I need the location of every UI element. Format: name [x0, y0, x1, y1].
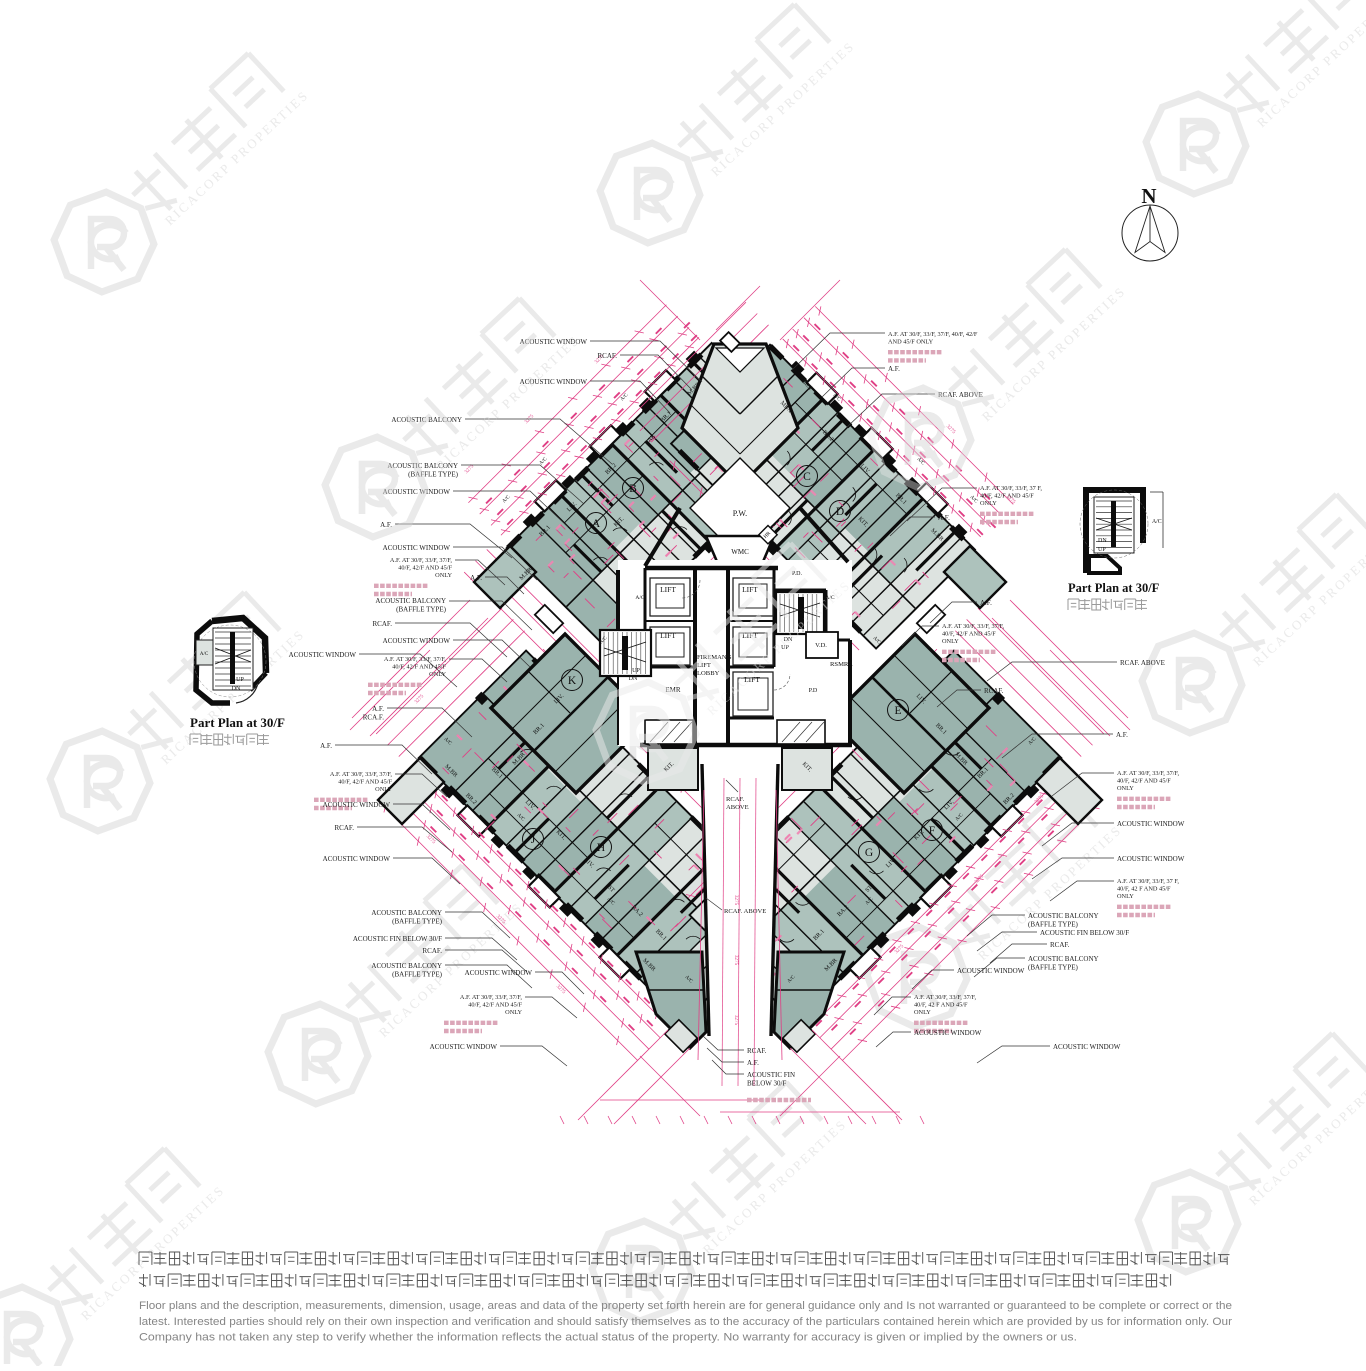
svg-text:RCAF.: RCAF.	[423, 947, 443, 955]
svg-text:A.F.: A.F.	[888, 365, 900, 373]
svg-text:RSMRR: RSMRR	[830, 661, 853, 668]
svg-text:F: F	[929, 825, 935, 837]
svg-text:A.F.: A.F.	[1116, 731, 1128, 739]
svg-text:ACOUSTIC WINDOW: ACOUSTIC WINDOW	[914, 1029, 982, 1037]
svg-text:A.F.: A.F.	[470, 574, 482, 582]
svg-text:K: K	[568, 675, 577, 687]
svg-text:DN: DN	[629, 676, 638, 682]
svg-text:ACOUSTIC WINDOW: ACOUSTIC WINDOW	[289, 651, 357, 659]
svg-text:Part Plan at 30/F: Part Plan at 30/F	[1068, 581, 1160, 595]
svg-text:A.F.: A.F.	[747, 1059, 759, 1067]
svg-text:ACOUSTIC FIN BELOW 30/F: ACOUSTIC FIN BELOW 30/F	[1040, 929, 1129, 937]
svg-text:RCAF.: RCAF.	[1050, 941, 1070, 949]
svg-text:C: C	[803, 471, 811, 483]
svg-text:ACOUSTIC WINDOW: ACOUSTIC WINDOW	[1117, 855, 1185, 863]
svg-text:DN: DN	[232, 686, 241, 692]
svg-text:A/C: A/C	[1152, 519, 1162, 525]
svg-text:UP: UP	[236, 677, 244, 683]
svg-text:P.W.: P.W.	[733, 509, 747, 518]
svg-text:ACOUSTIC WINDOW: ACOUSTIC WINDOW	[465, 969, 533, 977]
svg-text:J: J	[531, 834, 536, 846]
svg-text:LIFT: LIFT	[742, 585, 758, 594]
svg-text:P.D: P.D	[809, 688, 818, 694]
svg-text:Floor plans and the descriptio: Floor plans and the description, measure…	[139, 1300, 1232, 1312]
svg-text:ACOUSTIC WINDOW: ACOUSTIC WINDOW	[383, 544, 451, 552]
svg-text:RCAF.: RCAF.	[335, 824, 355, 832]
svg-text:ACOUSTIC WINDOW: ACOUSTIC WINDOW	[430, 1043, 498, 1051]
svg-text:WMC: WMC	[731, 548, 749, 556]
svg-text:Part Plan at 30/F: Part Plan at 30/F	[190, 715, 285, 730]
svg-text:ACOUSTIC FIN BELOW 30/F: ACOUSTIC FIN BELOW 30/F	[353, 935, 442, 943]
svg-text:RCAF. ABOVE: RCAF. ABOVE	[1120, 659, 1165, 667]
svg-text:ACOUSTIC WINDOW: ACOUSTIC WINDOW	[1053, 1043, 1121, 1051]
svg-text:A: A	[592, 518, 601, 530]
svg-text:RCAF.: RCAF.	[373, 620, 393, 628]
svg-text:ACOUSTIC WINDOW: ACOUSTIC WINDOW	[383, 637, 451, 645]
svg-text:H: H	[597, 842, 605, 854]
svg-text:B: B	[629, 483, 637, 495]
svg-text:RCAF. ABOVE: RCAF. ABOVE	[724, 908, 766, 915]
svg-text:latest. Interested parties sho: latest. Interested parties should rely o…	[139, 1316, 1232, 1328]
svg-text:3275: 3275	[733, 955, 739, 966]
svg-text:UP: UP	[632, 668, 640, 674]
svg-text:A/C: A/C	[635, 595, 645, 601]
svg-text:LIFT: LIFT	[660, 585, 676, 594]
svg-text:3275: 3275	[733, 1015, 739, 1026]
svg-text:LOBBY: LOBBY	[697, 670, 720, 677]
svg-text:E: E	[894, 705, 901, 717]
svg-text:A.F.: A.F.	[980, 599, 992, 607]
svg-text:ACOUSTIC WINDOW: ACOUSTIC WINDOW	[323, 801, 391, 809]
svg-text:3275: 3275	[733, 895, 739, 906]
svg-text:V.D.: V.D.	[815, 642, 827, 649]
svg-text:ACOUSTIC WINDOW: ACOUSTIC WINDOW	[957, 967, 1025, 975]
svg-text:RCAF.: RCAF.	[984, 687, 1004, 695]
svg-text:ACOUSTIC WINDOW: ACOUSTIC WINDOW	[323, 855, 391, 863]
svg-text:A.F.: A.F.	[320, 742, 332, 750]
svg-text:N: N	[1141, 184, 1156, 208]
svg-text:DN: DN	[1098, 538, 1107, 544]
svg-text:RCAF.: RCAF.	[598, 352, 618, 360]
svg-text:D: D	[836, 506, 844, 518]
svg-text:A.F.: A.F.	[938, 514, 950, 522]
svg-text:G: G	[865, 847, 873, 859]
svg-text:UP: UP	[1098, 547, 1106, 553]
svg-text:Company has not taken any step: Company has not taken any step to verify…	[139, 1332, 1077, 1344]
svg-text:A/C: A/C	[200, 652, 209, 657]
svg-text:RCAF.: RCAF.	[747, 1047, 767, 1055]
svg-text:ACOUSTIC WINDOW: ACOUSTIC WINDOW	[1117, 820, 1185, 828]
svg-text:LIFT: LIFT	[660, 631, 676, 640]
